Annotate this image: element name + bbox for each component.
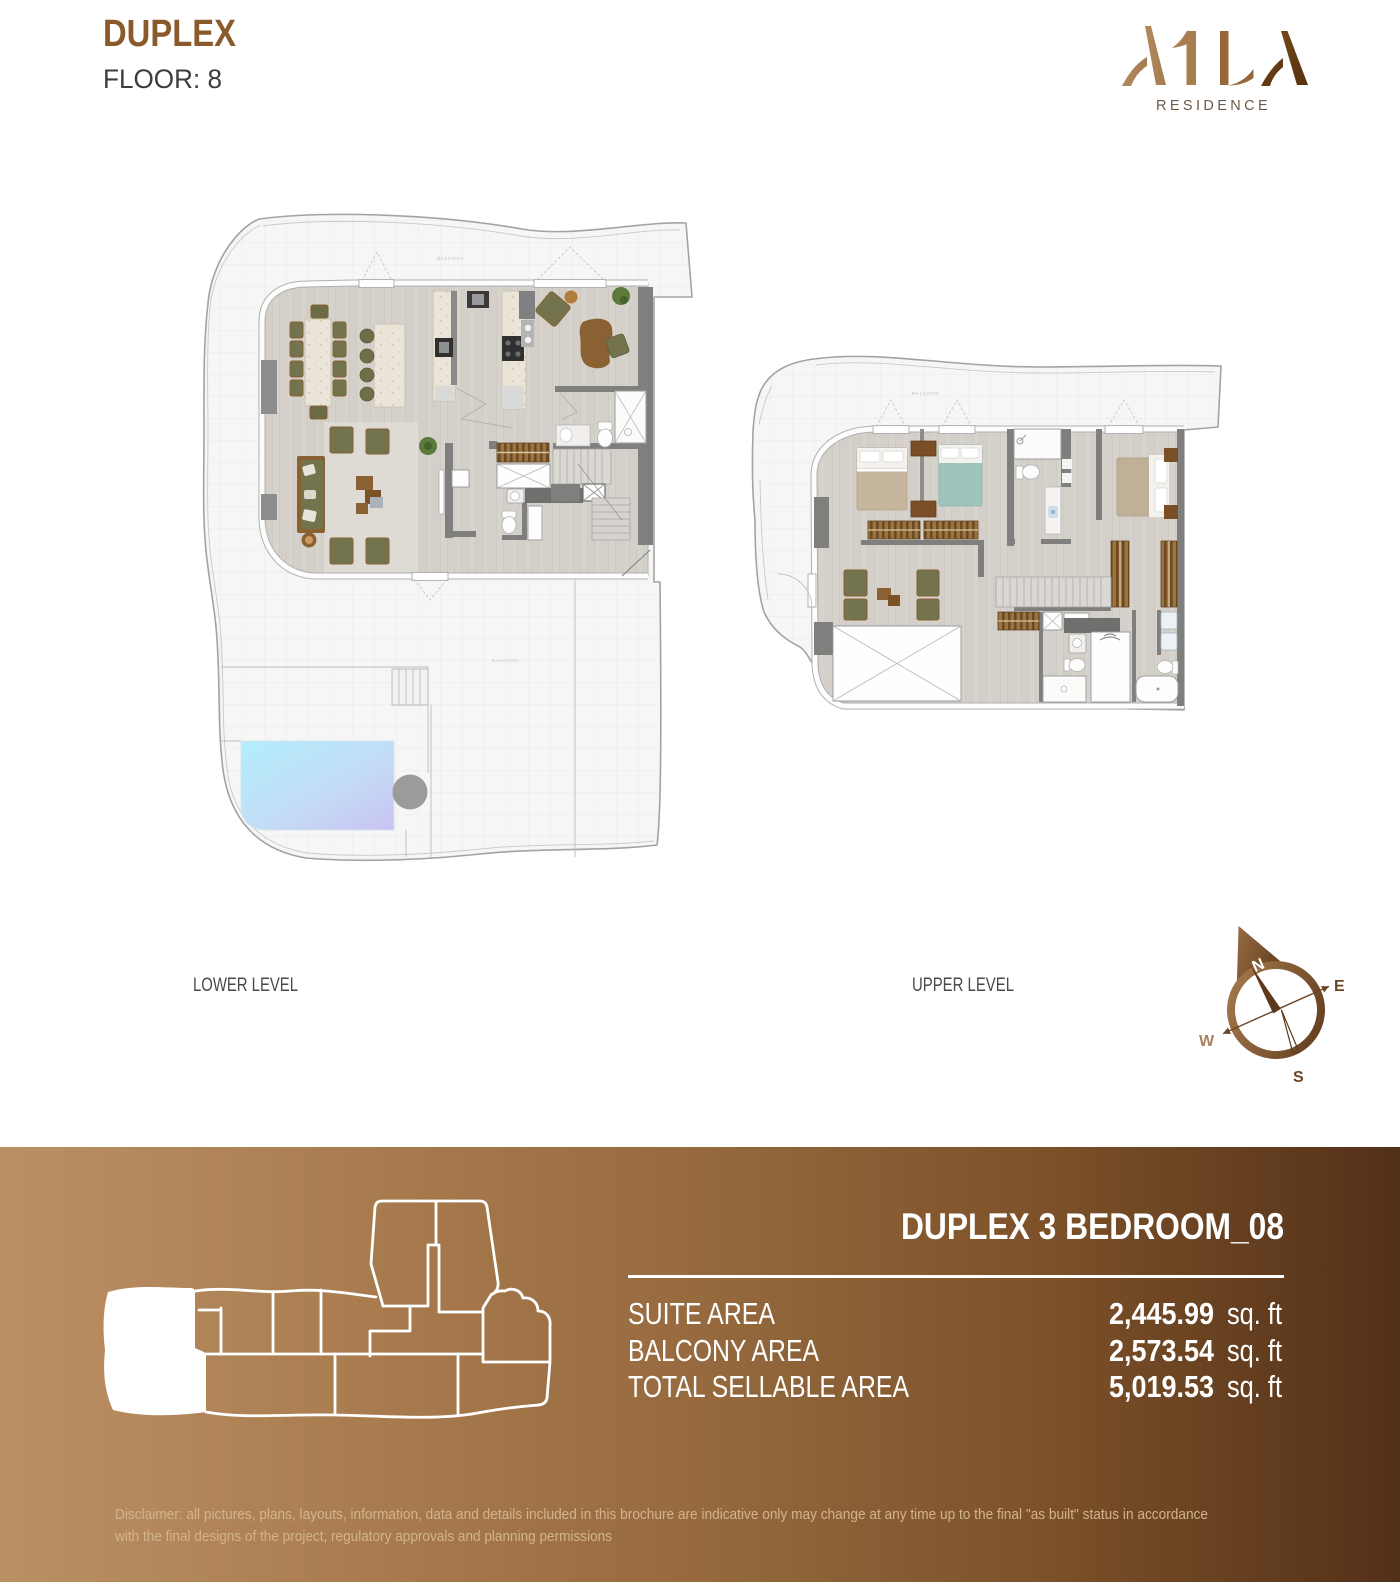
svg-text:2,445.99: 2,445.99 <box>1109 1296 1214 1331</box>
svg-text:W: W <box>1199 1033 1215 1050</box>
svg-text:5,019.53: 5,019.53 <box>1109 1369 1214 1404</box>
svg-text:sq. ft: sq. ft <box>1227 1296 1282 1331</box>
svg-text:S: S <box>1293 1069 1304 1086</box>
svg-text:sq. ft: sq. ft <box>1227 1333 1282 1368</box>
svg-text:sq. ft: sq. ft <box>1227 1369 1282 1404</box>
svg-text:DUPLEX: DUPLEX <box>103 13 237 55</box>
svg-text:FLOOR: 8: FLOOR: 8 <box>103 64 222 94</box>
svg-text:SUITE AREA: SUITE AREA <box>628 1296 775 1331</box>
svg-text:UPPER LEVEL: UPPER LEVEL <box>912 975 1014 996</box>
svg-text:Disclaimer: all pictures, plan: Disclaimer: all pictures, plans, layouts… <box>115 1506 1208 1523</box>
svg-text:LOWER LEVEL: LOWER LEVEL <box>193 975 298 996</box>
svg-text:DUPLEX 3 BEDROOM_08: DUPLEX 3 BEDROOM_08 <box>901 1206 1284 1247</box>
svg-text:with the final designs of the: with the final designs of the project, r… <box>114 1528 612 1545</box>
svg-text:BALCONY: BALCONY <box>912 391 939 397</box>
svg-text:TOTAL SELLABLE AREA: TOTAL SELLABLE AREA <box>628 1369 909 1404</box>
svg-text:2,573.54: 2,573.54 <box>1109 1333 1215 1368</box>
svg-text:E: E <box>1334 978 1345 995</box>
svg-text:BALCONY: BALCONY <box>437 256 464 262</box>
svg-text:RESIDENCE: RESIDENCE <box>1156 97 1271 114</box>
svg-text:BALCONY AREA: BALCONY AREA <box>628 1333 819 1368</box>
svg-text:BALCONY: BALCONY <box>492 658 519 664</box>
